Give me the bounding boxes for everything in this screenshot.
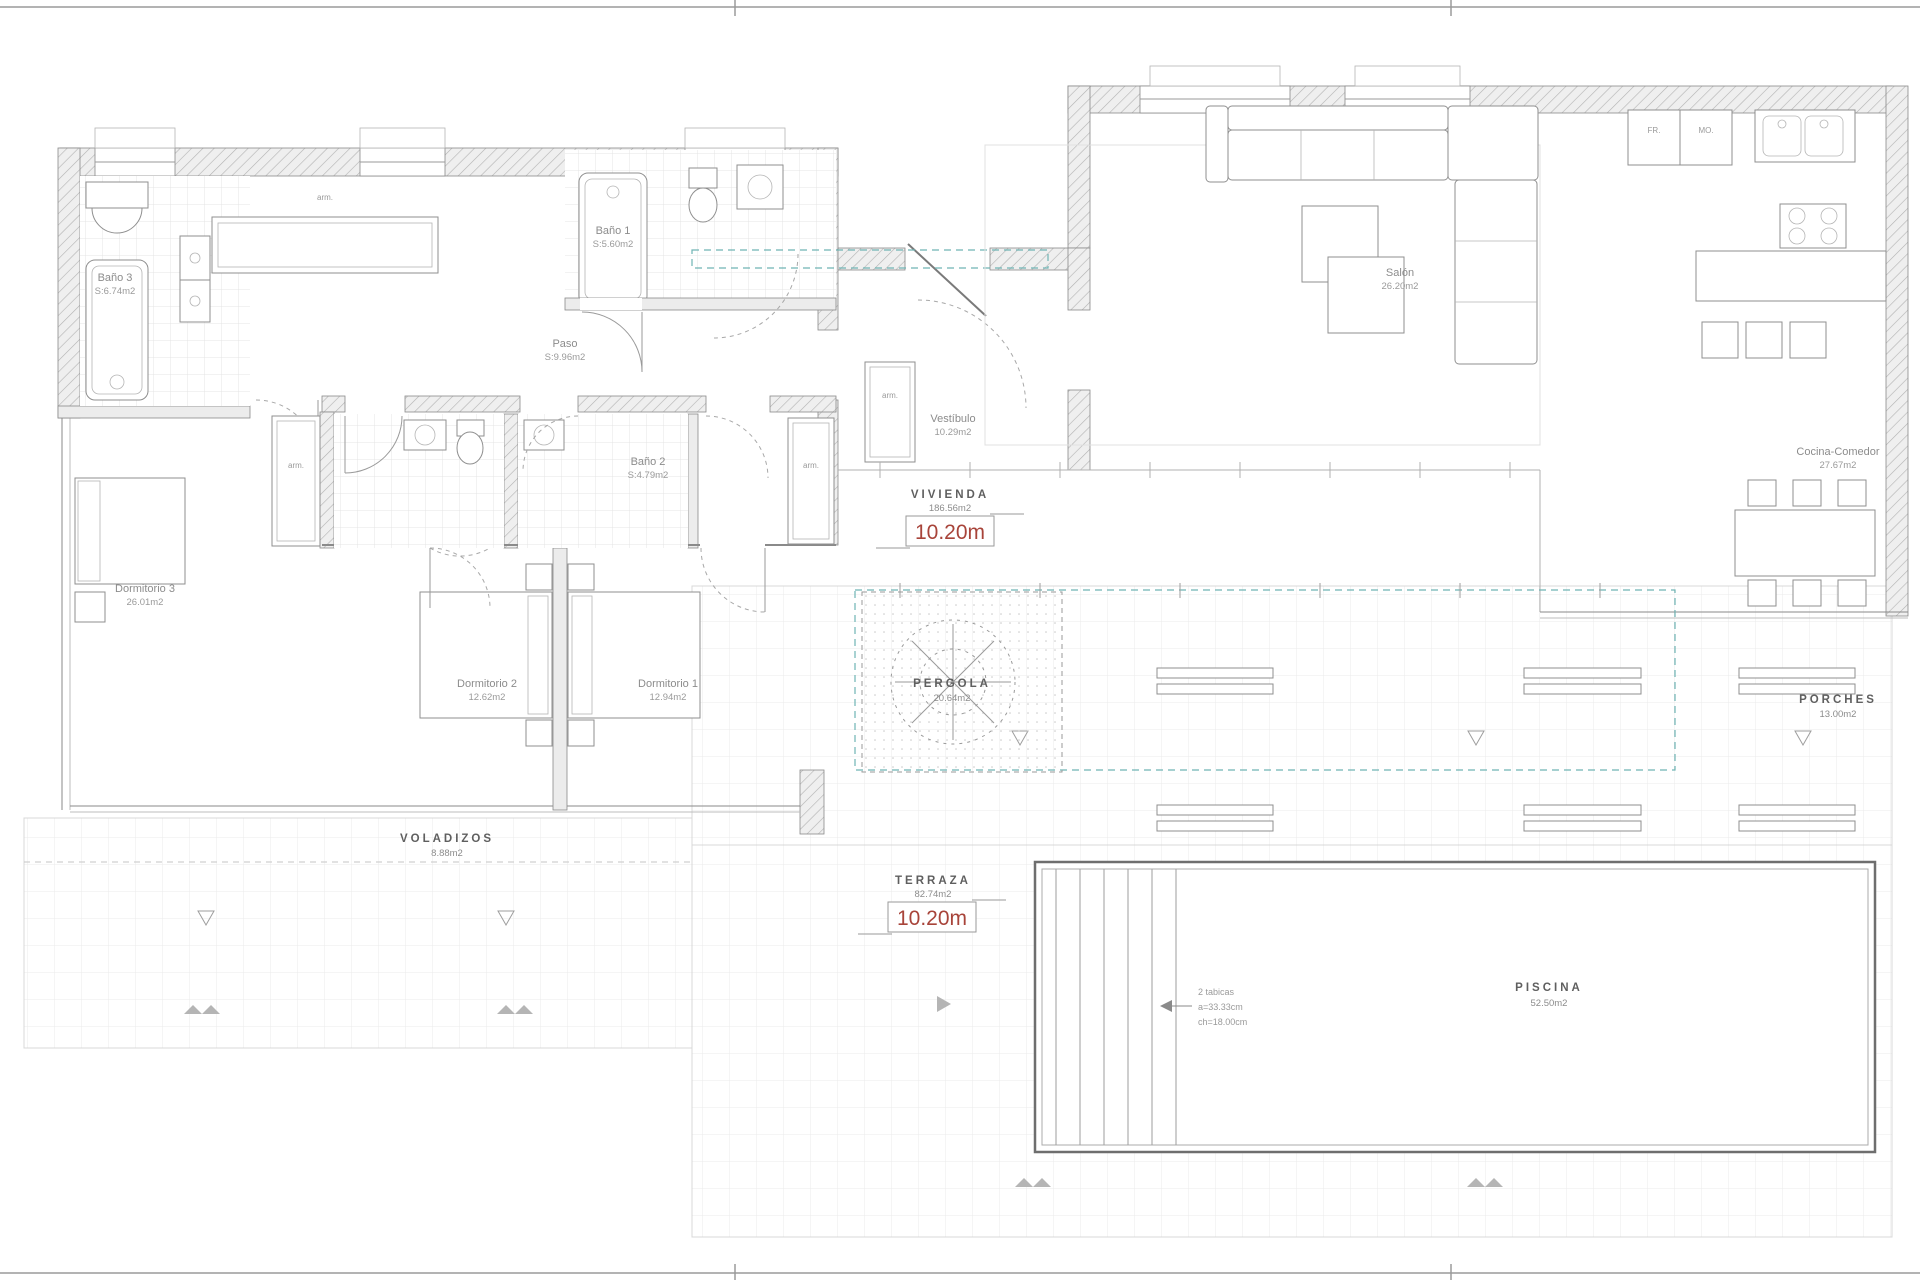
sink-icon — [524, 420, 564, 450]
cabinet-icon — [180, 236, 210, 322]
closet-label: arm. — [882, 391, 898, 400]
door-arc — [706, 416, 768, 478]
room-area-dorm1: 12.94m2 — [650, 692, 687, 703]
room-bano2: Baño 2 S:4.79m2 — [518, 414, 688, 548]
toilet-icon — [689, 168, 717, 222]
room-bano1: Baño 1 S:5.60m2 — [565, 150, 836, 372]
floor-plan-drawing: Baño 3 S:6.74m2 arm. Paso S:9.96m2 Baño … — [0, 0, 1920, 1280]
vivienda-dimension: 10.20m — [915, 521, 985, 544]
wardrobe-icon — [212, 217, 438, 273]
room-bano3: Baño 3 S:6.74m2 — [80, 176, 250, 406]
pool-outline — [1035, 862, 1875, 1152]
oven-label: MO. — [1698, 126, 1713, 135]
window-icon — [360, 128, 445, 176]
pool-note-line1: 2 tabicas — [1198, 987, 1235, 997]
room-salon: Salón 26.20m2 — [1206, 106, 1538, 364]
room-label-dorm3: Dormitorio 3 — [115, 583, 175, 595]
cooktop-icon — [1780, 204, 1846, 248]
closet-label: arm. — [288, 461, 304, 470]
door-arc — [918, 300, 1026, 408]
room-area-dorm2: 12.62m2 — [469, 692, 506, 703]
room-area-bano3: S:6.74m2 — [95, 286, 136, 297]
piscina-area: 52.50m2 — [1531, 998, 1568, 1009]
vivienda-annotation: VIVIENDA 186.56m2 10.20m — [876, 489, 1024, 548]
room-dorm3: Dormitorio 3 26.01m2 — [75, 478, 185, 622]
room-area-bano2: S:4.79m2 — [628, 470, 669, 481]
room-label-cocina: Cocina-Comedor — [1796, 446, 1879, 458]
dining-table-icon — [1735, 480, 1875, 606]
entry-door-leaf — [908, 244, 986, 316]
room-label-bano3: Baño 3 — [98, 272, 133, 284]
room-label-vestibulo: Vestíbulo — [930, 413, 975, 425]
room-label-dorm1: Dormitorio 1 — [638, 678, 698, 690]
vivienda-area: 186.56m2 — [929, 503, 971, 514]
vivienda-label: VIVIENDA — [911, 489, 989, 501]
oven-icon: MO. — [1680, 110, 1732, 165]
pergola-area: 20.64m2 — [934, 693, 971, 704]
pergola-label: PERGOLA — [913, 678, 991, 690]
room-label-bano2: Baño 2 — [631, 456, 666, 468]
room-area-cocina: 27.67m2 — [1820, 460, 1857, 471]
window-icon — [95, 128, 175, 176]
island-counter — [1696, 251, 1886, 301]
bed-icon — [568, 564, 700, 746]
room-area-bano1: S:5.60m2 — [593, 239, 634, 250]
fridge-label: FR. — [1648, 126, 1661, 135]
room-bath-a — [334, 414, 504, 548]
room-label-bano1: Baño 1 — [596, 225, 631, 237]
porches-area: 13.00m2 — [1820, 709, 1857, 720]
porches-label: PORCHES — [1799, 694, 1877, 706]
pergola: PERGOLA 20.64m2 — [862, 592, 1062, 772]
room-dorm1: Dormitorio 1 12.94m2 — [568, 564, 700, 746]
room-area-salon: 26.20m2 — [1382, 281, 1419, 292]
voladizos-label: VOLADIZOS — [400, 833, 494, 845]
stools — [1702, 322, 1826, 358]
room-area-vestibulo: 10.29m2 — [935, 427, 972, 438]
terraza-dimension: 10.20m — [897, 907, 967, 930]
pool: 2 tabicas a=33.33cm ch=18.00cm PISCINA 5… — [1015, 862, 1875, 1187]
floor-plan-sheet: Baño 3 S:6.74m2 arm. Paso S:9.96m2 Baño … — [0, 0, 1920, 1280]
room-label-salon: Salón — [1386, 267, 1414, 279]
sink-icon — [737, 165, 783, 209]
wardrobe-icon — [865, 362, 915, 462]
room-area-dorm3: 26.01m2 — [127, 597, 164, 608]
pool-note-line2: a=33.33cm — [1198, 1002, 1243, 1012]
sink-icon — [1755, 110, 1855, 162]
terraza-area: 82.74m2 — [915, 889, 952, 900]
bed-icon — [420, 564, 552, 746]
toilet-icon — [457, 420, 484, 464]
voladizos-area: 8.88m2 — [431, 848, 463, 859]
terraza-label: TERRAZA — [895, 875, 971, 887]
fridge-icon: FR. — [1628, 110, 1680, 165]
door-arc — [582, 312, 642, 372]
closet-label: arm. — [803, 461, 819, 470]
room-label-paso: Paso — [552, 338, 577, 350]
closet-label: arm. — [317, 193, 333, 202]
kitchen: FR. MO. Cocina-Comedor 27.67m2 — [1628, 110, 1886, 606]
pool-note-line3: ch=18.00cm — [1198, 1017, 1247, 1027]
room-label-dorm2: Dormitorio 2 — [457, 678, 517, 690]
room-area-paso: S:9.96m2 — [545, 352, 586, 363]
room-dorm2: Dormitorio 2 12.62m2 — [420, 548, 552, 746]
sink-icon — [404, 420, 446, 450]
piscina-label: PISCINA — [1515, 982, 1583, 994]
